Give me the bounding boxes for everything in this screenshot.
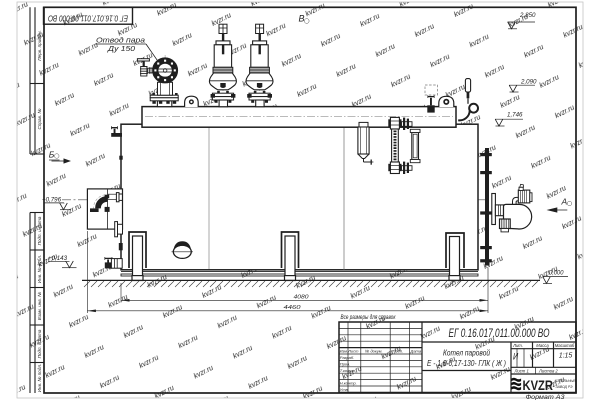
svg-text:Ду 150: Ду 150 bbox=[107, 44, 136, 53]
svg-text:Б: Б bbox=[49, 150, 55, 160]
svg-text:Пров.: Пров. bbox=[340, 361, 351, 366]
svg-text:0,000: 0,000 bbox=[549, 270, 564, 276]
svg-text:Е - 1,6-0,17-130- ГЛК ( Ж ): Е - 1,6-0,17-130- ГЛК ( Ж ) bbox=[427, 359, 506, 368]
svg-text:Т.контр.: Т.контр. bbox=[340, 368, 356, 373]
svg-text:КОТЕЛЬНЫЙ: КОТЕЛЬНЫЙ bbox=[555, 379, 577, 383]
svg-text:4080: 4080 bbox=[294, 295, 310, 301]
svg-text:Дата: Дата bbox=[410, 348, 422, 353]
svg-text:Изм.Лист: Изм.Лист bbox=[340, 348, 359, 353]
svg-text:И: И bbox=[513, 351, 518, 362]
svg-text:Подп. и дата: Подп. и дата bbox=[37, 216, 42, 245]
svg-text:Взам. инв. №: Взам. инв. № bbox=[37, 292, 42, 320]
svg-text:Лист 1: Лист 1 bbox=[514, 369, 529, 374]
svg-text:+0,143: +0,143 bbox=[48, 256, 68, 262]
svg-text:Перв. примен.: Перв. примен. bbox=[37, 30, 42, 61]
svg-text:Подп.: Подп. bbox=[393, 348, 404, 353]
svg-text:ЕГ 0.16.017.011.00.000 ВО: ЕГ 0.16.017.011.00.000 ВО bbox=[48, 14, 128, 23]
svg-text:KVZR: KVZR bbox=[523, 377, 554, 393]
svg-text:В: В bbox=[299, 14, 305, 24]
svg-text:Утв.: Утв. bbox=[340, 387, 349, 392]
svg-text:Листов 2: Листов 2 bbox=[538, 369, 558, 374]
svg-text:А: А bbox=[561, 197, 568, 207]
svg-text:Все размеры для справок: Все размеры для справок bbox=[341, 314, 397, 321]
svg-text:ЗАВОД РЭ: ЗАВОД РЭ bbox=[556, 385, 574, 389]
svg-text:№ докум.: № докум. bbox=[365, 348, 383, 353]
svg-text:2,850: 2,850 bbox=[519, 13, 536, 19]
svg-text:Н.контр.: Н.контр. bbox=[340, 381, 357, 386]
svg-text:Подп. и дата: Подп. и дата bbox=[37, 329, 42, 358]
svg-text:4460: 4460 bbox=[284, 305, 302, 311]
svg-text:Котел паровой: Котел паровой bbox=[443, 347, 490, 357]
svg-text:Масса: Масса bbox=[536, 343, 549, 348]
svg-text:Масштаб: Масштаб bbox=[555, 343, 575, 348]
svg-text:1,746: 1,746 bbox=[507, 112, 523, 118]
svg-text:1:15: 1:15 bbox=[559, 353, 573, 360]
svg-text:2,090: 2,090 bbox=[520, 79, 537, 85]
svg-text:Справ. №: Справ. № bbox=[37, 109, 42, 130]
svg-text:Лит.: Лит. bbox=[512, 343, 523, 348]
svg-text:Инв. № дубл.: Инв. № дубл. bbox=[37, 255, 42, 283]
svg-text:+0,796: +0,796 bbox=[42, 197, 62, 203]
svg-text:Формат А3: Формат А3 bbox=[526, 394, 565, 400]
svg-text:Разраб.: Разраб. bbox=[340, 355, 354, 360]
svg-text:Инв. № подл.: Инв. № подл. bbox=[37, 364, 42, 393]
svg-text:ЕГ 0.16.017.011.00.000 ВО: ЕГ 0.16.017.011.00.000 ВО bbox=[449, 328, 550, 340]
